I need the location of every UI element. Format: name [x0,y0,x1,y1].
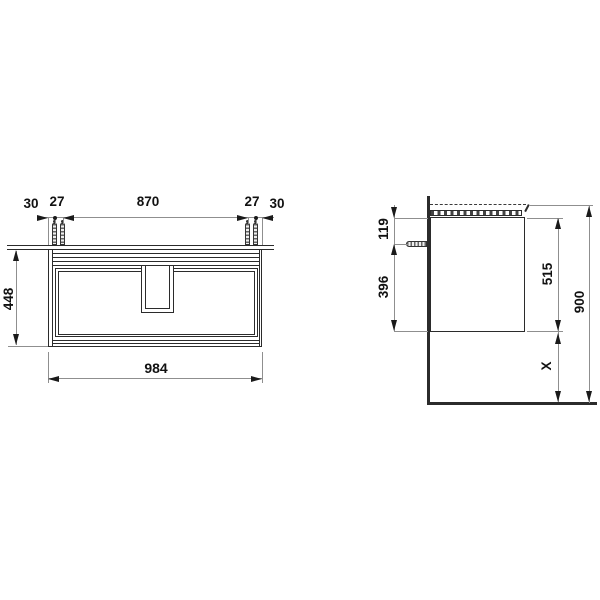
dim-top-to-bolt-label: 119 [377,209,391,249]
dim-mount-height-label: 900 [573,282,587,322]
dim-arrow [48,376,59,382]
dim-line-body-height [558,218,559,331]
front-rail-line [52,257,259,258]
dim-line-bolt [394,205,395,331]
dim-arrow [555,320,561,331]
dim-arrow [391,320,397,331]
dim-offset-right-label: 30 [262,197,292,211]
floor-line [427,402,597,405]
worktop-dashed-line [430,204,526,205]
front-frame-line-right [259,249,260,347]
dashed-line-tick [524,204,529,212]
ext-line [530,205,593,206]
ext-line [262,352,263,383]
dim-arrow [586,391,592,402]
dim-dot [53,216,57,220]
ext-line [8,346,48,347]
dim-arrow [555,333,561,344]
ext-line [262,217,263,245]
dim-arrow [63,215,74,221]
dim-height-label: 448 [2,279,16,319]
front-rail-line [52,340,259,341]
dim-clearance-label: X [540,346,554,386]
dim-arrow [251,376,262,382]
dim-arrow [586,206,592,217]
front-rail-line [52,261,259,262]
ext-line [48,217,49,245]
fixing-screw [245,223,250,245]
dim-arrow [13,250,19,261]
fixing-screw [60,223,65,245]
dim-dot [254,216,258,220]
dim-arrow [262,215,273,221]
dim-arrow [391,244,397,255]
dim-width-label: 984 [131,361,181,375]
front-frame-line-left [52,249,53,347]
fixing-screw [52,223,57,245]
wall-bolt [406,241,427,247]
dim-line-mount-height [589,205,590,403]
dim-arrow [555,391,561,402]
dim-arrow [237,215,248,221]
front-cutout-inner [145,266,170,309]
dim-arrow [13,334,19,345]
fixing-screw [253,223,258,245]
front-rail-line [52,253,259,254]
front-rail-line [52,343,259,344]
dim-line-width [48,378,262,379]
dim-body-height-label: 515 [541,254,555,294]
technical-drawing: 30 27 870 27 30 448 984 [0,0,600,600]
dim-arrow [37,215,48,221]
dim-bolt-to-bottom-label: 396 [377,267,391,307]
ext-line [394,331,428,332]
side-cabinet-outline [430,217,525,332]
dim-pitch-left-label: 27 [43,195,71,209]
dim-span-label: 870 [123,195,173,209]
dim-offset-left-label: 30 [16,197,46,211]
ext-line [248,217,249,224]
dim-line-height [16,251,17,345]
dim-arrow [555,218,561,229]
side-countertop [430,210,522,216]
dim-arrow [391,207,397,218]
ext-line [394,218,428,219]
